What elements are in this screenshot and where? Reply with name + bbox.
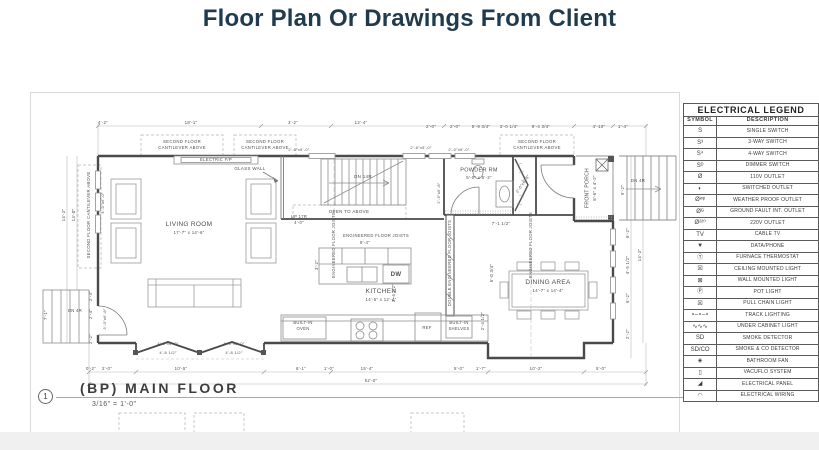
page-bottom-strip — [0, 432, 819, 450]
legend-symbol: Øʷᵖ — [684, 195, 717, 207]
legend-symbol: S⁴ — [684, 149, 717, 161]
legend-symbol: Sᴰ — [684, 160, 717, 172]
legend-symbol: TV — [684, 229, 717, 241]
electrical-legend: ELECTRICAL LEGEND SYMBOL DESCRIPTION SSI… — [683, 103, 819, 402]
page-title: Floor Plan Or Drawings From Client — [0, 5, 819, 33]
legend-description: DIMMER SWITCH — [717, 160, 819, 172]
legend-column-header: DESCRIPTION — [717, 117, 819, 126]
legend-symbol: Ⓟ — [684, 287, 717, 299]
legend-title-row: ELECTRICAL LEGEND — [684, 104, 819, 117]
legend-symbol: SD — [684, 333, 717, 345]
legend-row: SᴰDIMMER SWITCH — [684, 160, 819, 172]
legend-row: SDSMOKE DETECTOR — [684, 333, 819, 345]
legend-title: ELECTRICAL LEGEND — [684, 104, 819, 117]
legend-description: WALL MOUNTED LIGHT — [717, 275, 819, 287]
legend-row: ⓅPOT LIGHT — [684, 287, 819, 299]
legend-body: SSINGLE SWITCHS³3-WAY SWITCHS⁴4-WAY SWIT… — [684, 126, 819, 402]
legend-row: S⁴4-WAY SWITCH — [684, 149, 819, 161]
legend-row: ☒CEILING MOUNTED LIGHT — [684, 264, 819, 276]
legend-row: ☒PULL CHAIN LIGHT — [684, 298, 819, 310]
legend-row: ØʷᵖWEATHER PROOF OUTLET — [684, 195, 819, 207]
legend-symbol: ☒ — [684, 264, 717, 276]
legend-description: CABLE TV — [717, 229, 819, 241]
legend-symbol: SD/CO — [684, 344, 717, 356]
legend-symbol: ⊠ — [684, 275, 717, 287]
legend-row: ∿∿∿UNDER CABINET LIGHT — [684, 321, 819, 333]
legend-description: DATA/PHONE — [717, 241, 819, 253]
legend-description: TRACK LIGHTING — [717, 310, 819, 322]
legend-row: TVCABLE TV — [684, 229, 819, 241]
legend-description: ELECTRICAL WIRING — [717, 390, 819, 402]
legend-symbol: Ⓣ — [684, 252, 717, 264]
legend-symbol: Ø²²⁰ — [684, 218, 717, 230]
legend-description: SMOKE DETECTOR — [717, 333, 819, 345]
legend-row: ØᴳGROUND FAULT INT. OUTLET — [684, 206, 819, 218]
legend-symbol: Øᴳ — [684, 206, 717, 218]
legend-symbol: ☒ — [684, 298, 717, 310]
legend-row: ⓉFURNACE THERMOSTAT — [684, 252, 819, 264]
legend-symbol: ◈ — [684, 356, 717, 368]
legend-description: 3-WAY SWITCH — [717, 137, 819, 149]
legend-symbol: ∿∿∿ — [684, 321, 717, 333]
legend-description: 220V OUTLET — [717, 218, 819, 230]
legend-symbol: ◐ — [684, 183, 717, 195]
legend-row: S³3-WAY SWITCH — [684, 137, 819, 149]
legend-symbol: S — [684, 126, 717, 138]
legend-row: ▯VACUFLO SYSTEM — [684, 367, 819, 379]
legend-row: ◐SWITCHED OUTLET — [684, 183, 819, 195]
legend-symbol: S³ — [684, 137, 717, 149]
legend-description: 4-WAY SWITCH — [717, 149, 819, 161]
legend-header-row: SYMBOL DESCRIPTION — [684, 117, 819, 126]
legend-description: CEILING MOUNTED LIGHT — [717, 264, 819, 276]
legend-description: 110V OUTLET — [717, 172, 819, 184]
legend-row: Ø²²⁰220V OUTLET — [684, 218, 819, 230]
legend-description: UNDER CABINET LIGHT — [717, 321, 819, 333]
legend-description: SINGLE SWITCH — [717, 126, 819, 138]
legend-row: SSINGLE SWITCH — [684, 126, 819, 138]
legend-description: GROUND FAULT INT. OUTLET — [717, 206, 819, 218]
legend-description: POT LIGHT — [717, 287, 819, 299]
legend-description: WEATHER PROOF OUTLET — [717, 195, 819, 207]
legend-symbol: ∘–∘–∘ — [684, 310, 717, 322]
legend-description: SWITCHED OUTLET — [717, 183, 819, 195]
sheet-title: (BP) MAIN FLOOR — [80, 380, 239, 396]
legend-column-header: SYMBOL — [684, 117, 717, 126]
legend-description: PULL CHAIN LIGHT — [717, 298, 819, 310]
legend-row: SD/COSMOKE & CO DETECTOR — [684, 344, 819, 356]
legend-row: ◢ELECTRICAL PANEL — [684, 379, 819, 391]
legend-row: ▼DATA/PHONE — [684, 241, 819, 253]
legend-description: FURNACE THERMOSTAT — [717, 252, 819, 264]
legend-symbol: ▼ — [684, 241, 717, 253]
legend-symbol: Ø — [684, 172, 717, 184]
legend-symbol: ◠ — [684, 390, 717, 402]
legend-row: ⊠WALL MOUNTED LIGHT — [684, 275, 819, 287]
sheet-number-badge: 1 — [38, 389, 53, 404]
legend-row: Ø110V OUTLET — [684, 172, 819, 184]
sheet-title-underline — [56, 397, 683, 398]
legend-symbol: ◢ — [684, 379, 717, 391]
legend-description: BATHROOM FAN — [717, 356, 819, 368]
sheet-scale: 3/16" = 1'-0" — [92, 401, 137, 408]
legend-description: ELECTRICAL PANEL — [717, 379, 819, 391]
legend-row: ◈BATHROOM FAN — [684, 356, 819, 368]
legend-description: VACUFLO SYSTEM — [717, 367, 819, 379]
legend-description: SMOKE & CO DETECTOR — [717, 344, 819, 356]
legend-row: ◠ELECTRICAL WIRING — [684, 390, 819, 402]
page: Floor Plan Or Drawings From Client — [0, 0, 819, 450]
legend-row: ∘–∘–∘TRACK LIGHTING — [684, 310, 819, 322]
legend-symbol: ▯ — [684, 367, 717, 379]
